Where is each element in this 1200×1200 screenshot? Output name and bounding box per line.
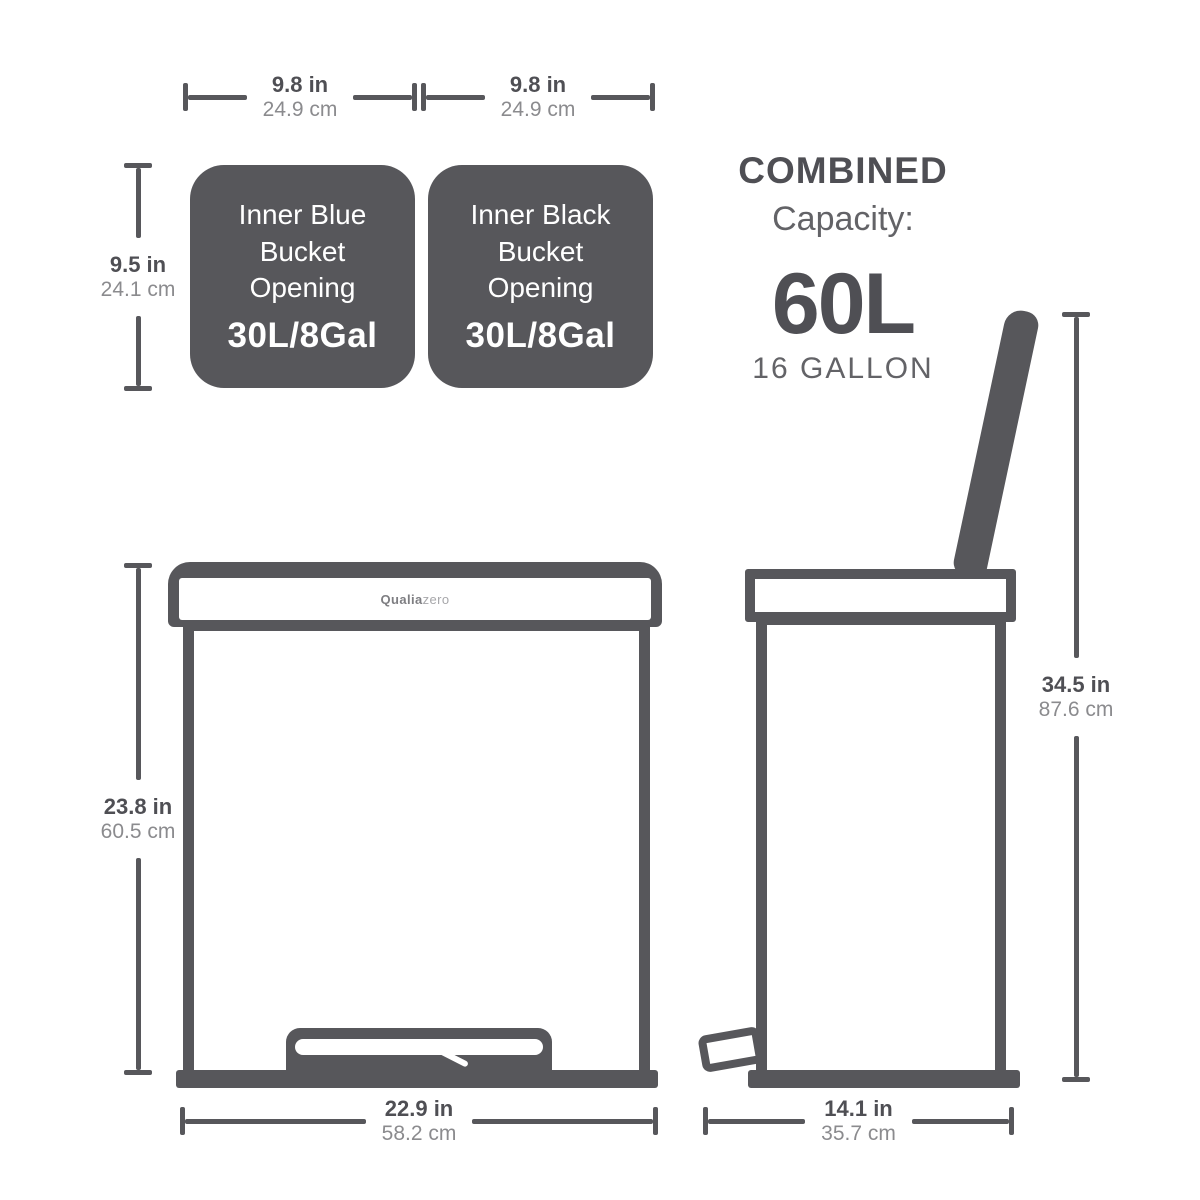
dim-line (136, 568, 141, 780)
dim-cm: 24.9 cm (501, 98, 576, 123)
dim-front-height: 23.8 in 60.5 cm (88, 563, 188, 1075)
dim-label: 9.5 in 24.1 cm (101, 238, 176, 317)
side-bin-base (748, 1070, 1020, 1088)
pedal-slot (295, 1039, 543, 1055)
bucket-volume: 30L/8Gal (228, 316, 378, 356)
combined-capacity-block: COMBINED Capacity: 60L 16 GALLON (658, 150, 1028, 386)
dim-label: 22.9 in 58.2 cm (366, 1096, 473, 1147)
combined-value: 60L (658, 261, 1028, 347)
dim-line (188, 95, 247, 100)
dim-cm: 24.1 cm (101, 278, 176, 303)
dim-cap (124, 386, 152, 391)
dim-line (136, 316, 141, 386)
dim-cm: 58.2 cm (382, 1122, 457, 1147)
dim-line (353, 95, 412, 100)
front-bin-lid: Qualiazero (168, 562, 662, 627)
combined-subtitle: Capacity: (658, 200, 1028, 239)
front-bin-pedal (286, 1028, 552, 1072)
dim-side-depth: 14.1 in 35.7 cm (703, 1088, 1014, 1154)
side-bin-pedal (697, 1026, 764, 1073)
front-bin-lid-face: Qualiazero (179, 578, 651, 620)
dim-line (136, 858, 141, 1070)
dim-inches: 9.8 in (501, 72, 576, 98)
dim-label: 23.8 in 60.5 cm (101, 780, 176, 859)
dim-cm: 87.6 cm (1039, 698, 1114, 723)
dim-inches: 23.8 in (101, 794, 176, 820)
dim-label: 34.5 in 87.6 cm (1039, 658, 1114, 737)
side-bin-rim (745, 569, 1016, 622)
front-bin-base (176, 1070, 658, 1088)
bucket-label: Inner Black Bucket Opening (453, 197, 628, 308)
dim-line (591, 95, 650, 100)
brand-logo-light: zero (423, 592, 450, 607)
dim-label: 9.8 in 24.9 cm (485, 72, 592, 123)
dim-bucket-right-width: 9.8 in 24.9 cm (421, 64, 655, 130)
dim-cap (1009, 1107, 1014, 1135)
brand-logo-bold: Qualia (380, 592, 422, 607)
dim-cap (650, 83, 655, 111)
dim-line (472, 1119, 653, 1124)
inner-bucket-card-blue: Inner Blue Bucket Opening 30L/8Gal (190, 165, 415, 388)
dim-inches: 22.9 in (382, 1096, 457, 1122)
dim-inches: 9.8 in (263, 72, 338, 98)
dim-line (708, 1119, 805, 1124)
bucket-volume: 30L/8Gal (466, 316, 616, 356)
dim-label: 9.8 in 24.9 cm (247, 72, 354, 123)
dim-cm: 24.9 cm (263, 98, 338, 123)
bucket-label: Inner Blue Bucket Opening (215, 197, 390, 308)
combined-gallons: 16 GALLON (658, 352, 1028, 386)
brand-logo: Qualiazero (380, 592, 449, 607)
spec-diagram-canvas: 9.8 in 24.9 cm 9.8 in 24.9 cm 9.5 in 24.… (0, 0, 1200, 1200)
dim-bucket-left-width: 9.8 in 24.9 cm (183, 64, 417, 130)
dim-bucket-height: 9.5 in 24.1 cm (88, 163, 188, 391)
side-bin-body (756, 614, 1006, 1076)
dim-cm: 60.5 cm (101, 820, 176, 845)
front-bin-body (183, 620, 650, 1076)
dim-cap (653, 1107, 658, 1135)
dim-line (912, 1119, 1009, 1124)
dim-cap (1062, 1077, 1090, 1082)
dim-inches: 9.5 in (101, 252, 176, 278)
dim-line (1074, 317, 1079, 658)
dim-line (136, 168, 141, 238)
combined-title: COMBINED (658, 150, 1028, 192)
dim-inches: 34.5 in (1039, 672, 1114, 698)
dim-front-width: 22.9 in 58.2 cm (180, 1088, 658, 1154)
dim-label: 14.1 in 35.7 cm (805, 1096, 912, 1147)
dim-cm: 35.7 cm (821, 1122, 896, 1147)
dim-cap (412, 83, 417, 111)
inner-bucket-card-black: Inner Black Bucket Opening 30L/8Gal (428, 165, 653, 388)
dim-cap (124, 1070, 152, 1075)
dim-line (426, 95, 485, 100)
dim-line (1074, 736, 1079, 1077)
dim-inches: 14.1 in (821, 1096, 896, 1122)
dim-side-height: 34.5 in 87.6 cm (1026, 312, 1126, 1082)
dim-line (185, 1119, 366, 1124)
